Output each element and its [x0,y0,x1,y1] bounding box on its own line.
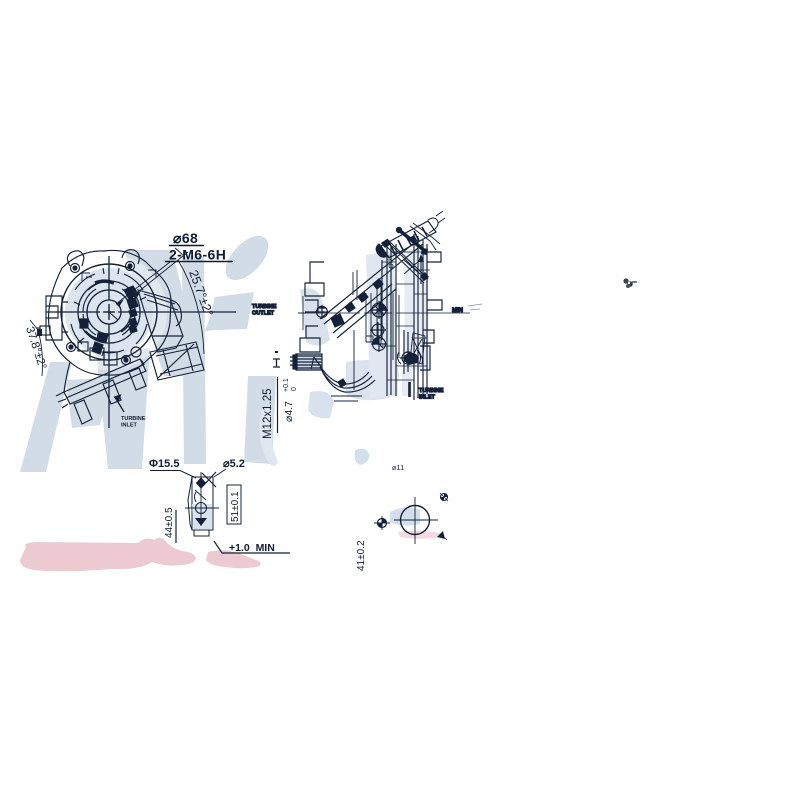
svg-text:+0.1: +0.1 [283,378,290,392]
svg-text:MIN: MIN [452,308,463,314]
svg-text:⌀4.7: ⌀4.7 [283,401,295,422]
svg-text:51±0.1: 51±0.1 [230,491,241,522]
svg-text:+1.0 MIN: +1.0 MIN [229,542,275,554]
svg-text:OUTLET: OUTLET [252,311,275,317]
svg-text:Φ15.5: Φ15.5 [149,458,179,470]
svg-text:TURBINE: TURBINE [121,416,146,422]
svg-text:TURBINE: TURBINE [252,304,277,310]
svg-text:⌀11: ⌀11 [392,463,404,472]
svg-text:44±0.5: 44±0.5 [164,507,175,538]
svg-text:0: 0 [291,387,298,391]
svg-text:M12x1.25: M12x1.25 [262,388,274,439]
svg-text:41±0.2: 41±0.2 [356,540,367,571]
svg-text:INLET: INLET [419,395,436,401]
svg-text:⌀68: ⌀68 [173,230,198,246]
svg-text:⌀5.2: ⌀5.2 [223,458,245,470]
svg-text:INLET: INLET [121,423,138,429]
svg-text:TURBINE: TURBINE [419,388,444,394]
